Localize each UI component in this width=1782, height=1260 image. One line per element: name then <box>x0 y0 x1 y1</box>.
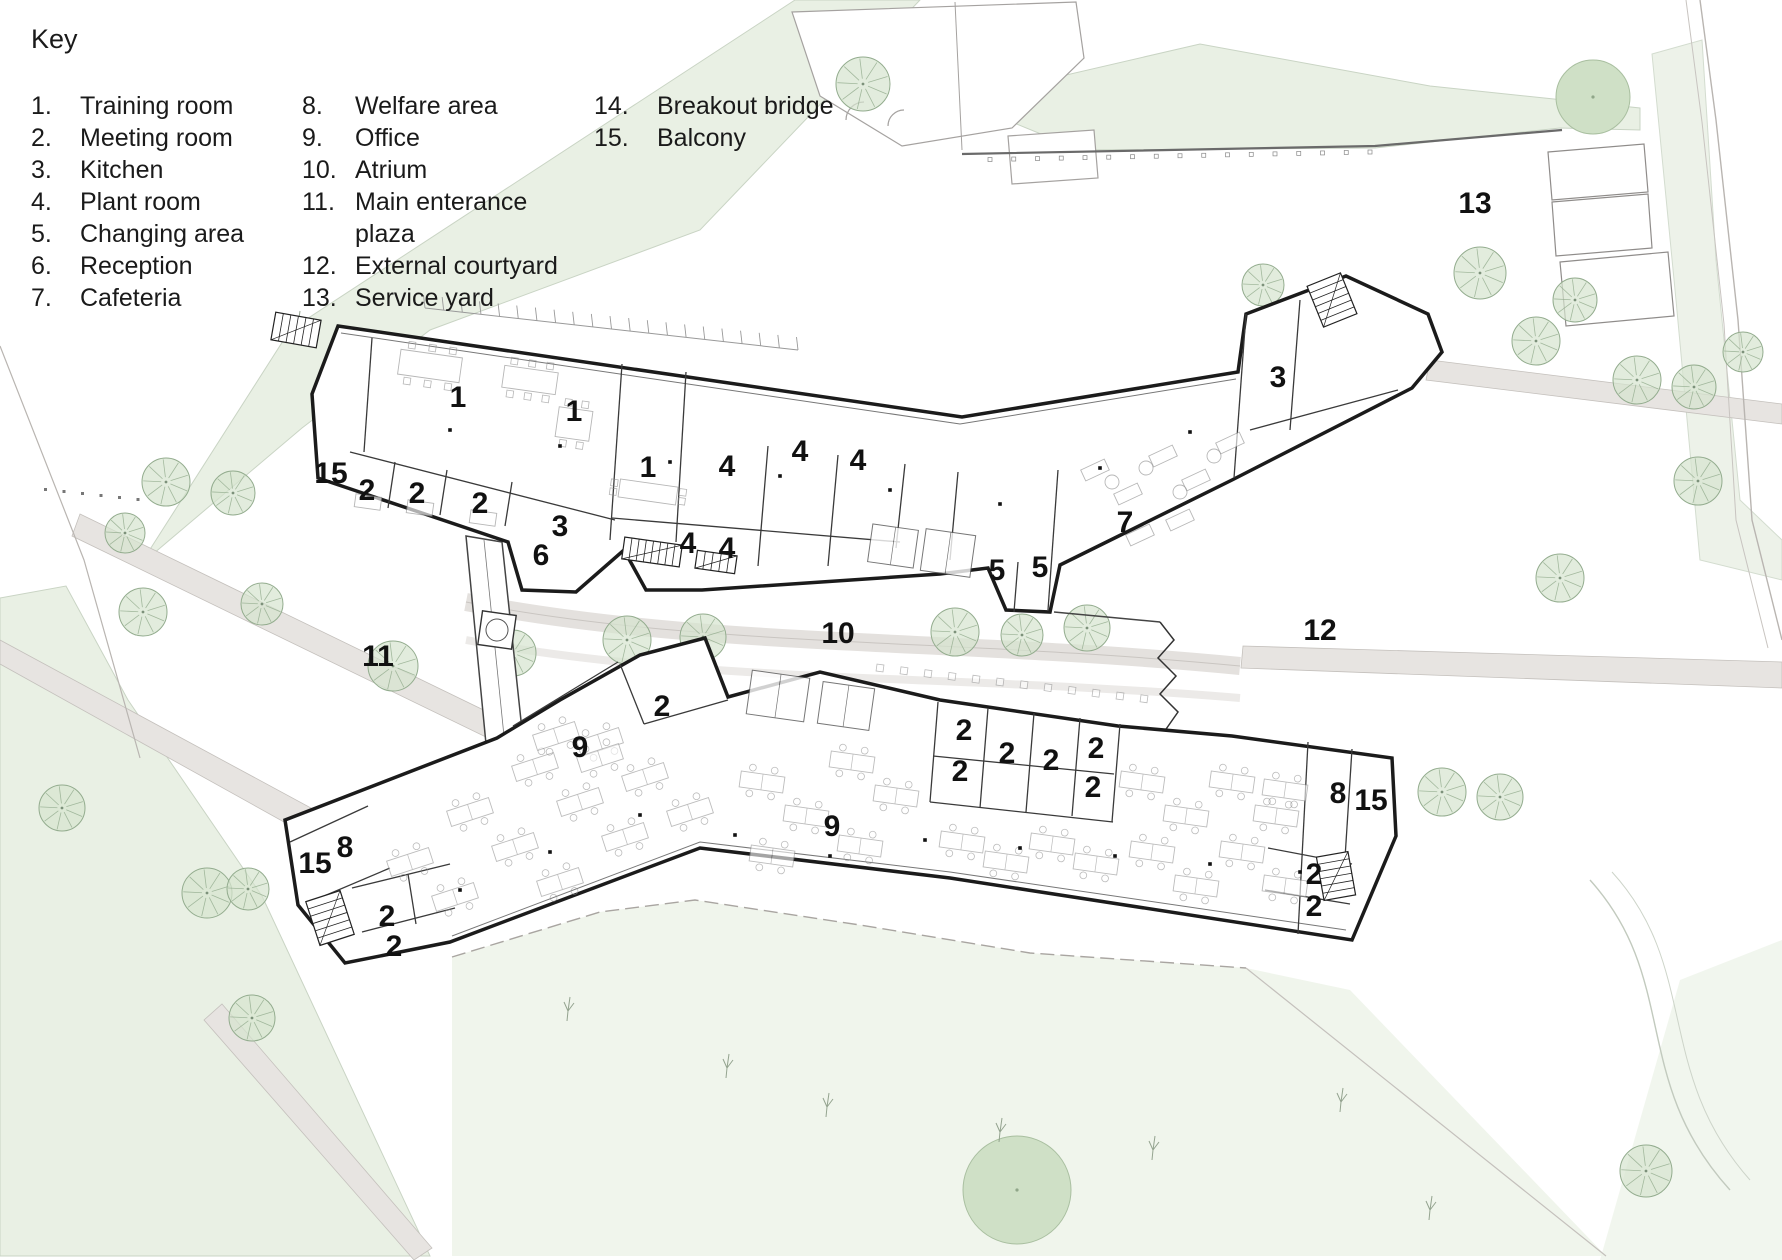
key-item-label: Changing area <box>80 218 244 250</box>
key-item-label: Service yard <box>355 282 494 314</box>
room-label-1: 1 <box>450 381 467 414</box>
floor-plan-page: 1111522236444445573299222222815228152210… <box>0 0 1782 1260</box>
key-item: 6.Reception <box>31 250 244 282</box>
tree-solid-icon <box>963 1136 1071 1244</box>
tree-icon <box>1418 768 1466 816</box>
room-label-2: 2 <box>1085 771 1102 804</box>
room-label-8: 8 <box>337 831 354 864</box>
tree-icon <box>836 57 890 111</box>
key-item-number: 3. <box>31 154 80 186</box>
room-label-2: 2 <box>1088 732 1105 765</box>
key-item-number: 11. <box>302 186 355 250</box>
tree-solid-icon <box>1556 60 1630 134</box>
key-item: 8.Welfare area <box>302 90 577 122</box>
key-item-label: Breakout bridge <box>657 90 834 122</box>
tree-icon <box>105 513 145 553</box>
room-label-15: 15 <box>1354 784 1387 817</box>
key-item: 13.Service yard <box>302 282 577 314</box>
key-item-label: Cafeteria <box>80 282 181 314</box>
key-item: 14.Breakout bridge <box>594 90 834 122</box>
key-item-number: 2. <box>31 122 80 154</box>
room-label-13: 13 <box>1458 187 1491 220</box>
key-item: 4.Plant room <box>31 186 244 218</box>
room-label-2: 2 <box>1306 858 1323 891</box>
room-label-9: 9 <box>572 731 589 764</box>
key-item-number: 7. <box>31 282 80 314</box>
key-item-label: Office <box>355 122 420 154</box>
key-item-label: External courtyard <box>355 250 558 282</box>
room-label-4: 4 <box>850 444 867 477</box>
room-label-2: 2 <box>952 755 969 788</box>
room-label-2: 2 <box>999 737 1016 770</box>
key-item-number: 10. <box>302 154 355 186</box>
tree-icon <box>1723 332 1763 372</box>
key-item-number: 1. <box>31 90 80 122</box>
room-label-2: 2 <box>956 714 973 747</box>
room-label-4: 4 <box>680 527 697 560</box>
key-item-label: Welfare area <box>355 90 498 122</box>
room-label-4: 4 <box>792 435 809 468</box>
key-item: 3.Kitchen <box>31 154 244 186</box>
tree-icon <box>931 608 979 656</box>
tree-icon <box>119 588 167 636</box>
key-item: 12.External courtyard <box>302 250 577 282</box>
room-label-9: 9 <box>824 810 841 843</box>
room-label-1: 1 <box>640 451 657 484</box>
room-label-11: 11 <box>362 640 394 673</box>
tree-icon <box>1672 365 1716 409</box>
key-item-number: 13. <box>302 282 355 314</box>
room-label-15: 15 <box>314 457 347 490</box>
room-label-5: 5 <box>989 554 1006 587</box>
room-label-2: 2 <box>409 477 426 510</box>
room-label-15: 15 <box>298 847 331 880</box>
tree-icon <box>1536 554 1584 602</box>
key-item: 1.Training room <box>31 90 244 122</box>
tree-icon <box>227 868 269 910</box>
key-item: 15.Balcony <box>594 122 834 154</box>
room-label-3: 3 <box>1270 361 1287 394</box>
key-column-2: 8.Welfare area9.Office10.Atrium11.Main e… <box>302 90 577 314</box>
key-item: 10.Atrium <box>302 154 577 186</box>
key-item: 2.Meeting room <box>31 122 244 154</box>
key-item-number: 6. <box>31 250 80 282</box>
tree-icon <box>39 785 85 831</box>
tree-icon <box>1674 457 1722 505</box>
room-label-2: 2 <box>359 474 376 507</box>
room-label-2: 2 <box>472 487 489 520</box>
key-item-label: Main enterance plaza <box>355 186 577 250</box>
room-label-8: 8 <box>1330 777 1347 810</box>
room-label-2: 2 <box>654 690 671 723</box>
tree-icon <box>1613 356 1661 404</box>
key-item-number: 12. <box>302 250 355 282</box>
key-title: Key <box>31 24 78 55</box>
key-item-label: Meeting room <box>80 122 233 154</box>
key-column-3: 14.Breakout bridge15.Balcony <box>594 90 834 154</box>
tree-icon <box>1512 317 1560 365</box>
tree-icon <box>229 995 275 1041</box>
room-label-10: 10 <box>821 617 854 650</box>
room-label-3: 3 <box>552 510 569 543</box>
key-item-label: Kitchen <box>80 154 163 186</box>
tree-icon <box>1454 247 1506 299</box>
key-item: 7.Cafeteria <box>31 282 244 314</box>
room-label-4: 4 <box>719 450 736 483</box>
key-item-number: 5. <box>31 218 80 250</box>
key-item-number: 9. <box>302 122 355 154</box>
tree-icon <box>1477 774 1523 820</box>
key-item-label: Plant room <box>80 186 201 218</box>
key-item-number: 8. <box>302 90 355 122</box>
room-label-12: 12 <box>1303 614 1336 647</box>
room-label-7: 7 <box>1117 506 1134 539</box>
key-item-label: Training room <box>80 90 233 122</box>
key-item-label: Balcony <box>657 122 746 154</box>
tree-icon <box>1242 264 1284 306</box>
tree-icon <box>241 583 283 625</box>
tree-icon <box>182 868 232 918</box>
key-column-1: 1.Training room2.Meeting room3.Kitchen4.… <box>31 90 244 314</box>
tree-icon <box>1001 614 1043 656</box>
key-item: 5.Changing area <box>31 218 244 250</box>
tree-icon <box>211 471 255 515</box>
room-label-2: 2 <box>1043 744 1060 777</box>
tree-icon <box>1620 1145 1672 1197</box>
key-item: 11.Main enterance plaza <box>302 186 577 250</box>
key-item-number: 15. <box>594 122 657 154</box>
room-label-4: 4 <box>719 532 736 565</box>
tree-icon <box>1553 278 1597 322</box>
room-label-2: 2 <box>379 900 396 933</box>
key-item-label: Atrium <box>355 154 427 186</box>
key-item-number: 4. <box>31 186 80 218</box>
room-label-6: 6 <box>533 539 550 572</box>
room-label-1: 1 <box>566 395 583 428</box>
site-plan-drawing: 1111522236444445573299222222815228152210… <box>0 0 1782 1260</box>
tree-icon <box>1064 605 1110 651</box>
room-label-2: 2 <box>1306 890 1323 923</box>
key-item-label: Reception <box>80 250 193 282</box>
tree-icon <box>142 458 190 506</box>
room-label-5: 5 <box>1032 551 1049 584</box>
key-item-number: 14. <box>594 90 657 122</box>
key-item: 9.Office <box>302 122 577 154</box>
room-label-2: 2 <box>386 930 403 963</box>
